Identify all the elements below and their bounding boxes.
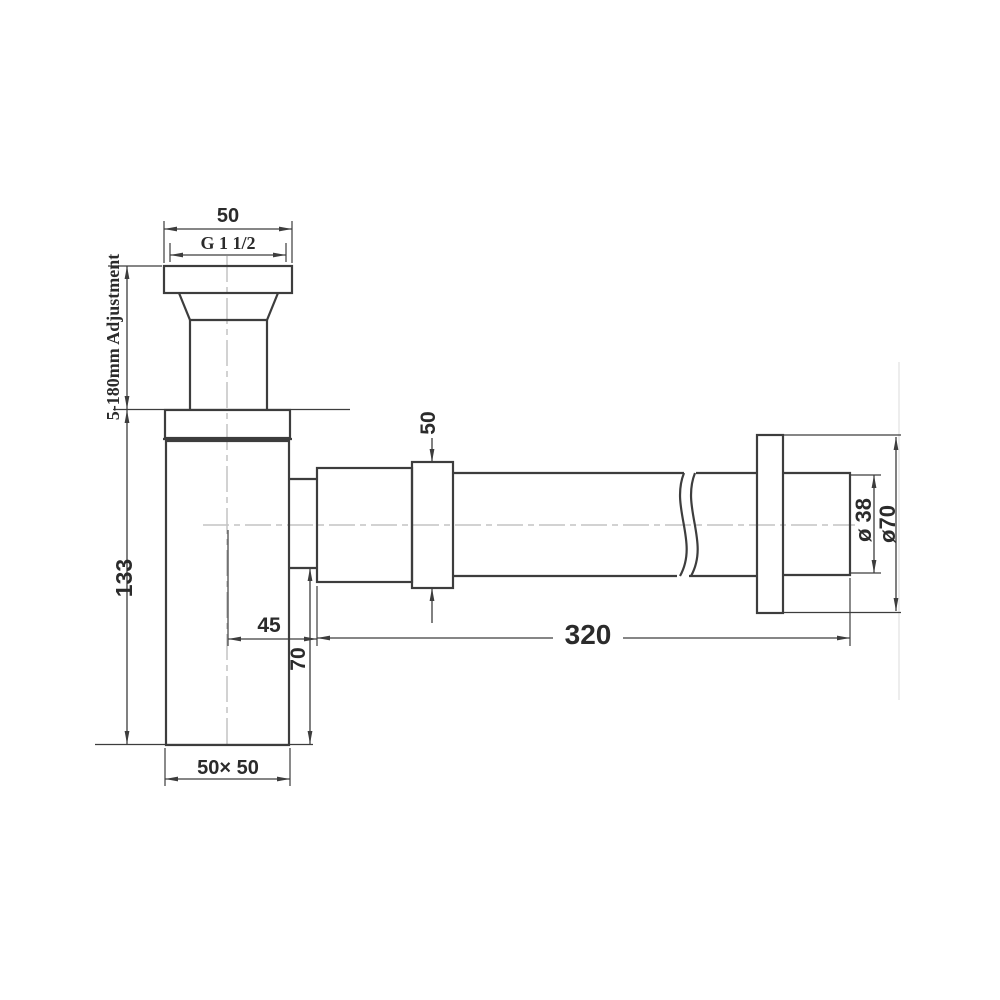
dim-adjustment-label: 5-180mm Adjustment bbox=[103, 254, 123, 421]
dim-thread-label: G 1 1/2 bbox=[200, 233, 255, 253]
top-flange-outline bbox=[164, 266, 292, 293]
dim-offset-label: 45 bbox=[257, 614, 281, 637]
technical-drawing-page: 50 G 1 1/2 5-180mm Adjustment 133 45 70 … bbox=[0, 0, 1000, 1000]
dim-body-height-label: 133 bbox=[111, 559, 137, 597]
wall-flange-outline bbox=[757, 435, 783, 613]
dim-outlet-height-label: 70 bbox=[287, 647, 310, 670]
dim-adjustment-extensions bbox=[108, 266, 350, 410]
dim-top-width-label: 50 bbox=[217, 205, 239, 227]
dim-flange-dia-label: ø70 bbox=[875, 505, 900, 543]
taper-outline bbox=[179, 293, 278, 320]
tailpiece-tube-outline bbox=[190, 320, 267, 409]
dim-base-label: 50× 50 bbox=[197, 757, 259, 779]
dim-pipe-length-label: 320 bbox=[565, 619, 612, 650]
outlet-step-outline bbox=[289, 479, 317, 568]
dim-nut-label: 50 bbox=[417, 411, 440, 434]
trap-outline-group bbox=[163, 266, 850, 745]
wall-sleeve-outline bbox=[783, 473, 850, 575]
dim-pipe-dia-label: ø 38 bbox=[851, 498, 876, 542]
bottle-trap-drawing: 50 G 1 1/2 5-180mm Adjustment 133 45 70 … bbox=[0, 0, 1000, 1000]
